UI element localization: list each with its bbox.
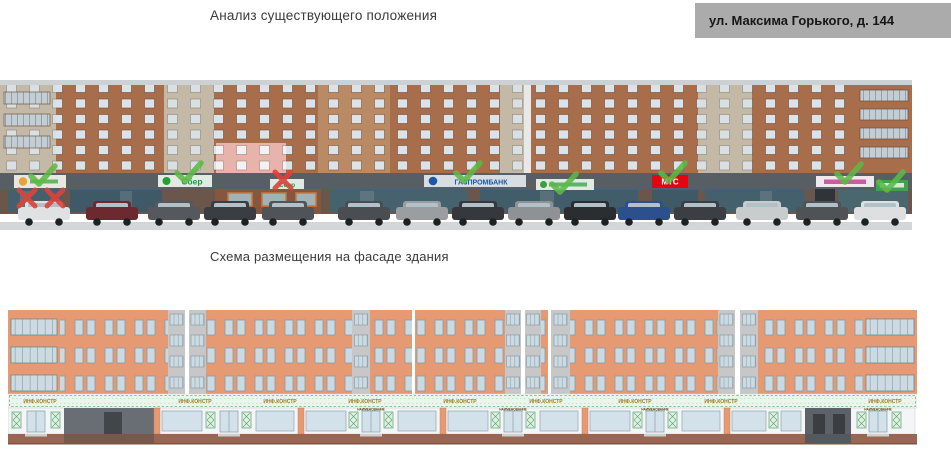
address-box: ул. Максима Горького, д. 144 (695, 3, 951, 38)
entrance-door (27, 411, 45, 432)
shop-window (162, 411, 202, 431)
sign-band-label: ИНФ.КОНСТР (529, 399, 563, 405)
facade-pale-section (318, 85, 390, 173)
door-header-label: НАИМЕНОВАНИЕ (641, 408, 669, 412)
entrance-door (504, 411, 522, 432)
lattice-panel (769, 412, 778, 428)
pilaster (298, 408, 304, 434)
slide: Анализ существующего положения ул. Макси… (0, 0, 951, 464)
apartment-facade (0, 85, 912, 173)
storefront-row: НАИМЕНОВАНИЕ НАИМЕНОВАНИЕ НАИМЕНОВАНИЕ Н… (8, 408, 915, 434)
sign-band-label: ИНФ.КОНСТР (443, 399, 477, 405)
entrance-door (646, 411, 664, 432)
lattice-panel (384, 412, 393, 428)
pilaster (440, 408, 446, 434)
shop-window (306, 411, 346, 431)
page-title: Анализ существующего положения (210, 8, 437, 23)
sign-gazprombank: ГАЗПРОМБАНК (424, 175, 526, 187)
lattice-panel (206, 412, 215, 428)
lattice-panel (12, 412, 21, 428)
archway-section (805, 408, 851, 434)
elevation-balcony-left (8, 310, 60, 394)
sign-band: ИНФ.КОНСТР ИНФ.КОНСТР ИНФ.КОНСТР ИНФ.КОН… (8, 394, 917, 408)
lattice-panel (51, 412, 60, 428)
lattice-panel (526, 412, 535, 428)
shop-window (448, 411, 488, 431)
sign-band-label: ИНФ.КОНСТР (868, 399, 902, 405)
pilaster (724, 408, 730, 434)
shop-window (398, 411, 436, 431)
recessed-dark-section (64, 408, 154, 434)
lattice-panel (668, 412, 677, 428)
door-header-label: НАИМЕНОВАНИЕ (357, 408, 385, 412)
balcony-stack-right (856, 85, 912, 173)
facade-elevation-drawing: ИНФ.КОНСТР ИНФ.КОНСТР ИНФ.КОНСТР ИНФ.КОН… (8, 310, 917, 448)
shop-window (732, 411, 766, 431)
address-text: ул. Максима Горького, д. 144 (709, 13, 894, 28)
shop-window (256, 411, 294, 431)
lattice-panel (242, 412, 251, 428)
elevation-balcony-right (863, 310, 917, 394)
door-header-label: НАИМЕНОВАНИЕ (499, 408, 527, 412)
lattice-panel (633, 412, 642, 428)
shop-window (590, 411, 630, 431)
lattice-panel (857, 412, 866, 428)
scheme-title: Схема размещения на фасаде здания (210, 249, 449, 264)
sign-band-label: ИНФ.КОНСТР (178, 399, 212, 405)
street-photo: Сбер Сбер ГАЗПРОМБАНК (0, 80, 912, 230)
elevation-wall (8, 310, 917, 394)
entrance-door (362, 411, 380, 432)
photo-panel: Сбер Сбер ГАЗПРОМБАНК (0, 80, 912, 230)
shop-window (540, 411, 578, 431)
elevation-panel: ИНФ.КОНСТР ИНФ.КОНСТР ИНФ.КОНСТР ИНФ.КОН… (8, 310, 917, 448)
facade-pink-section (216, 143, 286, 173)
shop-window (682, 411, 720, 431)
pilaster (582, 408, 588, 434)
lattice-panel (892, 412, 901, 428)
sign-band-label: ИНФ.КОНСТР (23, 399, 57, 405)
sign-band-label: ИНФ.КОНСТР (618, 399, 652, 405)
sign-band-label: ИНФ.КОНСТР (704, 399, 738, 405)
lattice-panel (349, 412, 358, 428)
base-strip (8, 434, 917, 445)
lattice-panel (491, 412, 500, 428)
shop-window (781, 411, 801, 431)
sign-band-label: ИНФ.КОНСТР (263, 399, 297, 405)
pilaster (154, 408, 160, 434)
entrance-door (869, 411, 887, 432)
facade-beige-column (164, 85, 214, 173)
sign-band-label: ИНФ.КОНСТР (348, 399, 382, 405)
balcony-stack-left (4, 92, 50, 148)
facade-beige-column (698, 85, 752, 173)
facade-beige-column (500, 85, 526, 173)
door-header-label: НАИМЕНОВАНИЕ (864, 408, 892, 412)
entrance-door (220, 411, 238, 432)
